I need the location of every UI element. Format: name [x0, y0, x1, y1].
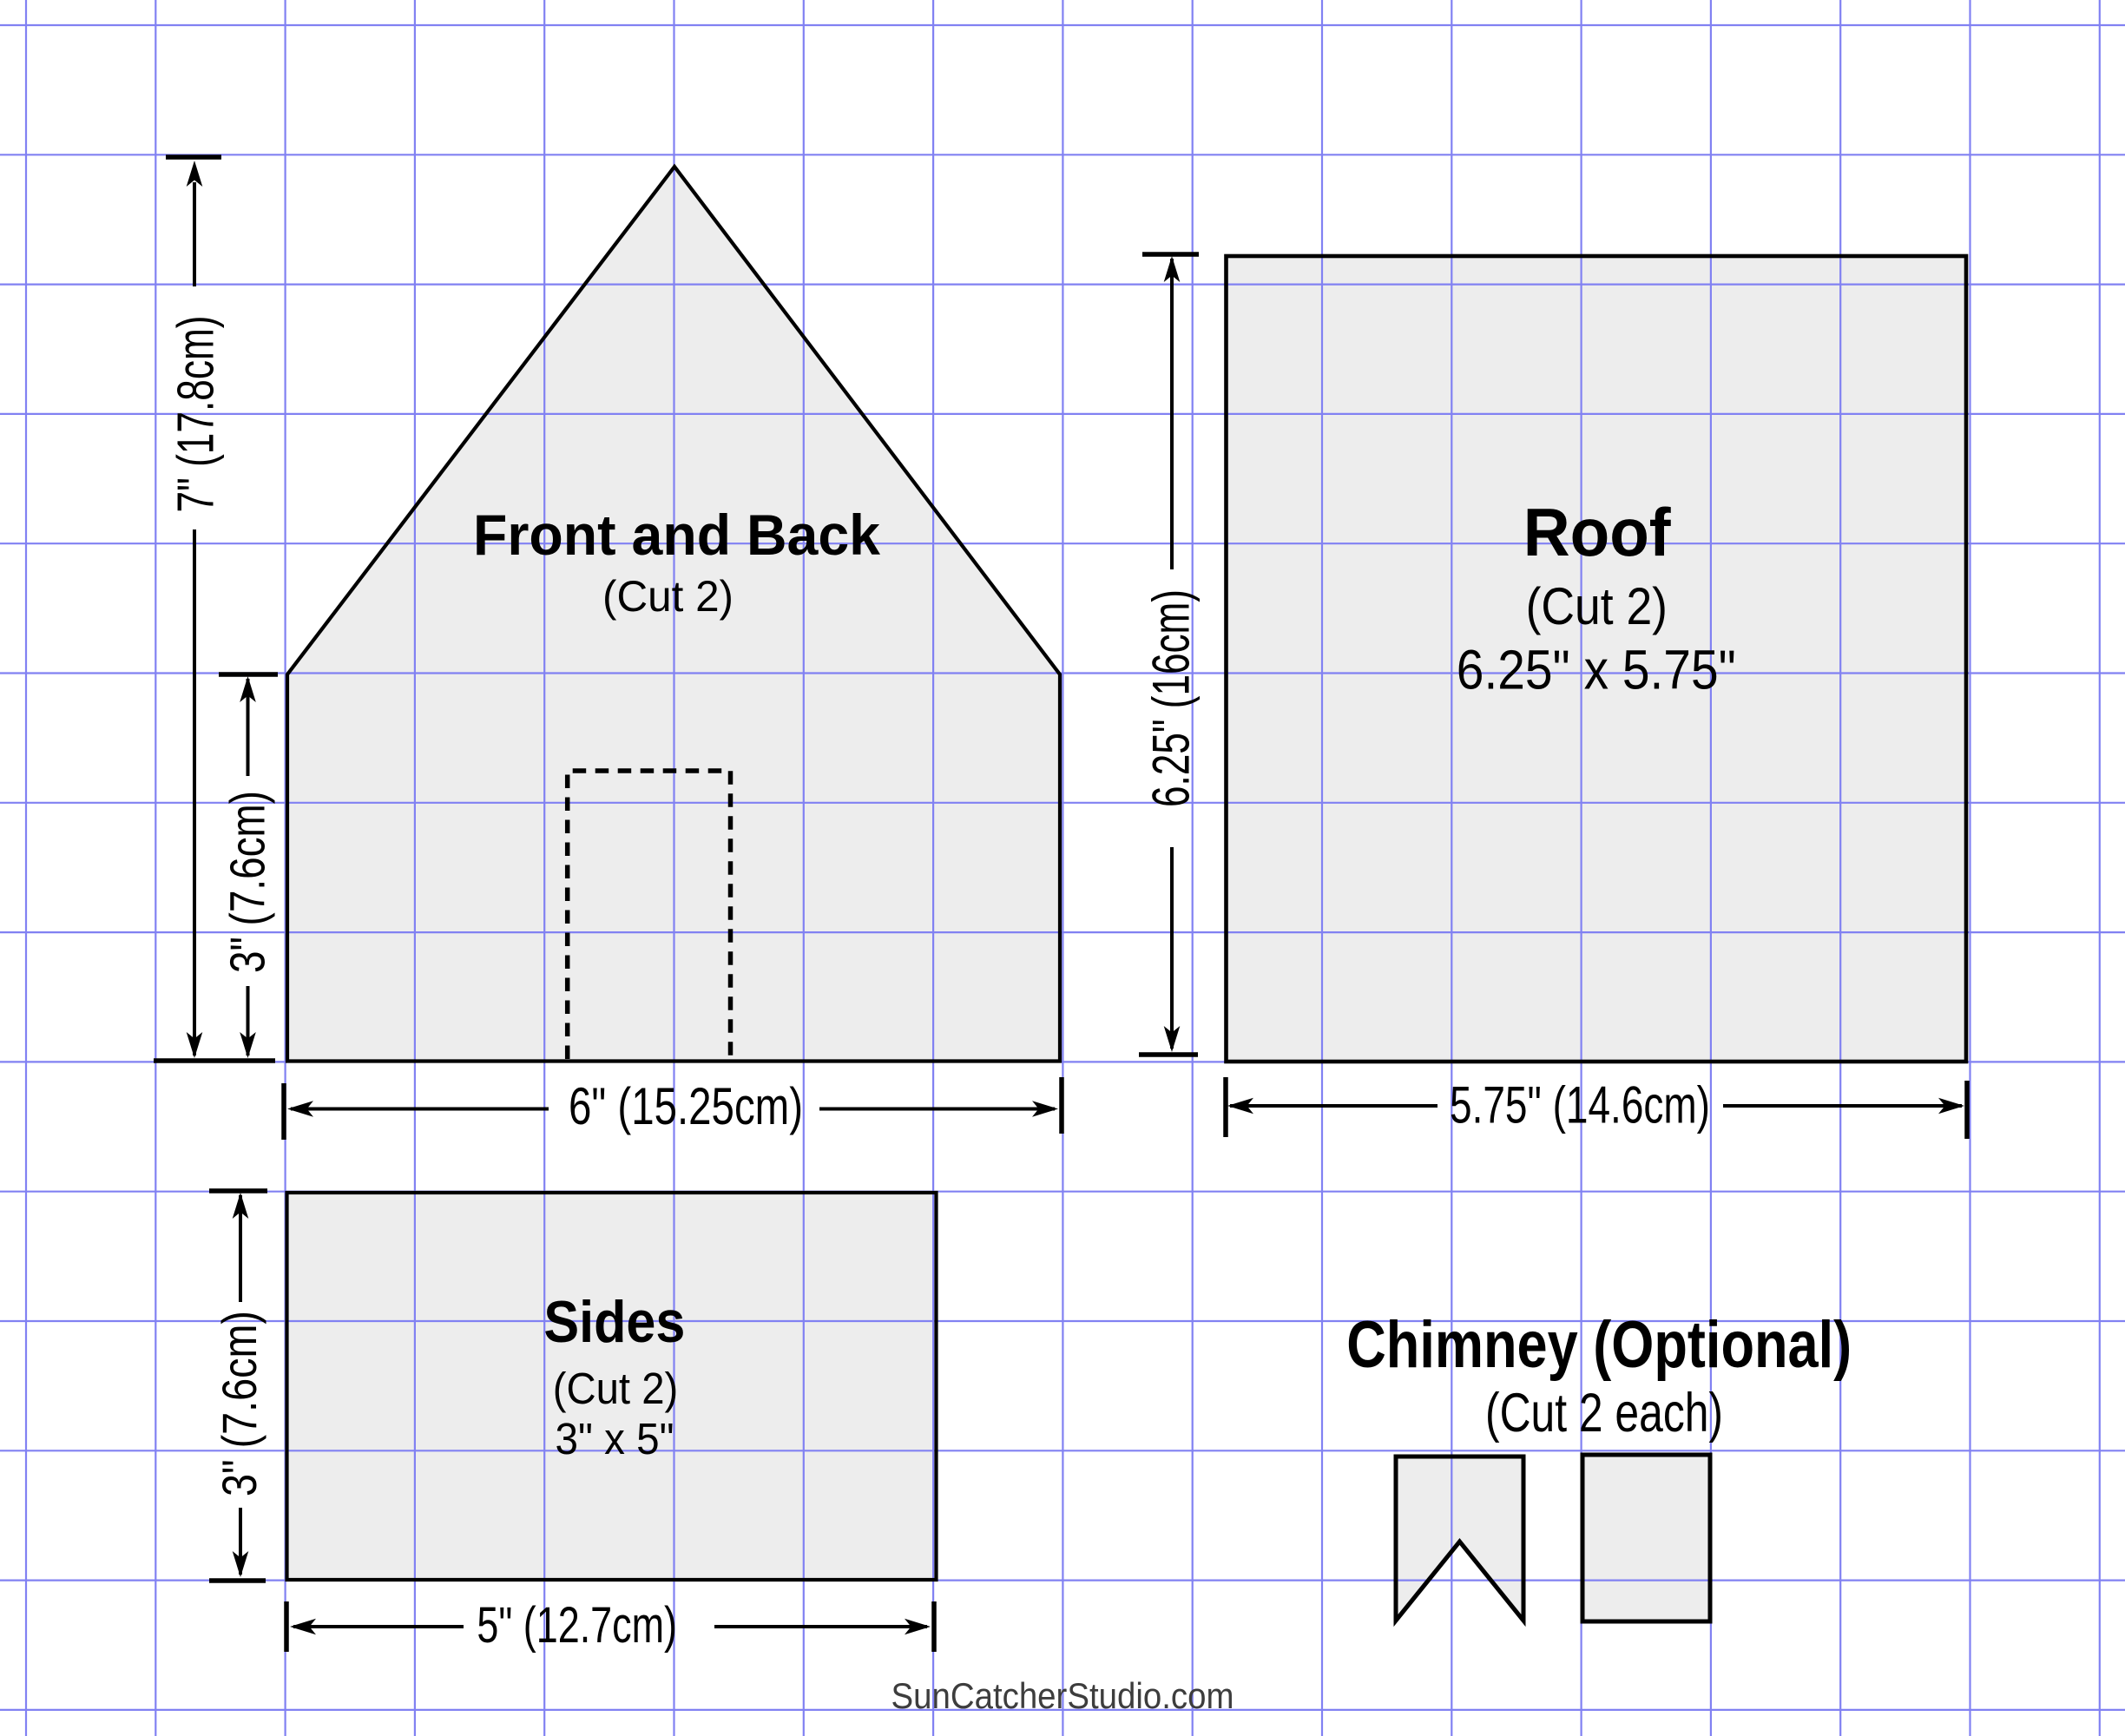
- svg-text:6" (15.25cm): 6" (15.25cm): [569, 1077, 803, 1135]
- svg-text:(Cut 2): (Cut 2): [602, 572, 734, 621]
- svg-text:Front and Back: Front and Back: [473, 503, 880, 567]
- svg-text:6.25" (16cm): 6.25" (16cm): [1142, 589, 1201, 807]
- svg-text:7" (17.8cm): 7" (17.8cm): [168, 316, 225, 513]
- svg-text:(Cut 2 each): (Cut 2 each): [1485, 1383, 1723, 1443]
- svg-text:5" (12.7cm): 5" (12.7cm): [477, 1597, 677, 1654]
- svg-text:6.25" x 5.75": 6.25" x 5.75": [1457, 638, 1736, 700]
- svg-text:Chimney (Optional): Chimney (Optional): [1346, 1308, 1852, 1382]
- svg-text:3" (7.6cm): 3" (7.6cm): [220, 791, 276, 973]
- svg-text:Sides: Sides: [543, 1289, 685, 1355]
- svg-text:Roof: Roof: [1523, 494, 1672, 570]
- svg-text:3" x 5": 3" x 5": [556, 1414, 674, 1463]
- svg-text:SunCatcherStudio.com: SunCatcherStudio.com: [891, 1675, 1234, 1716]
- svg-text:(Cut 2): (Cut 2): [1526, 577, 1668, 635]
- svg-text:5.75" (14.6cm): 5.75" (14.6cm): [1450, 1076, 1710, 1134]
- svg-text:(Cut 2): (Cut 2): [553, 1364, 679, 1413]
- svg-text:3" (7.6cm): 3" (7.6cm): [212, 1311, 266, 1496]
